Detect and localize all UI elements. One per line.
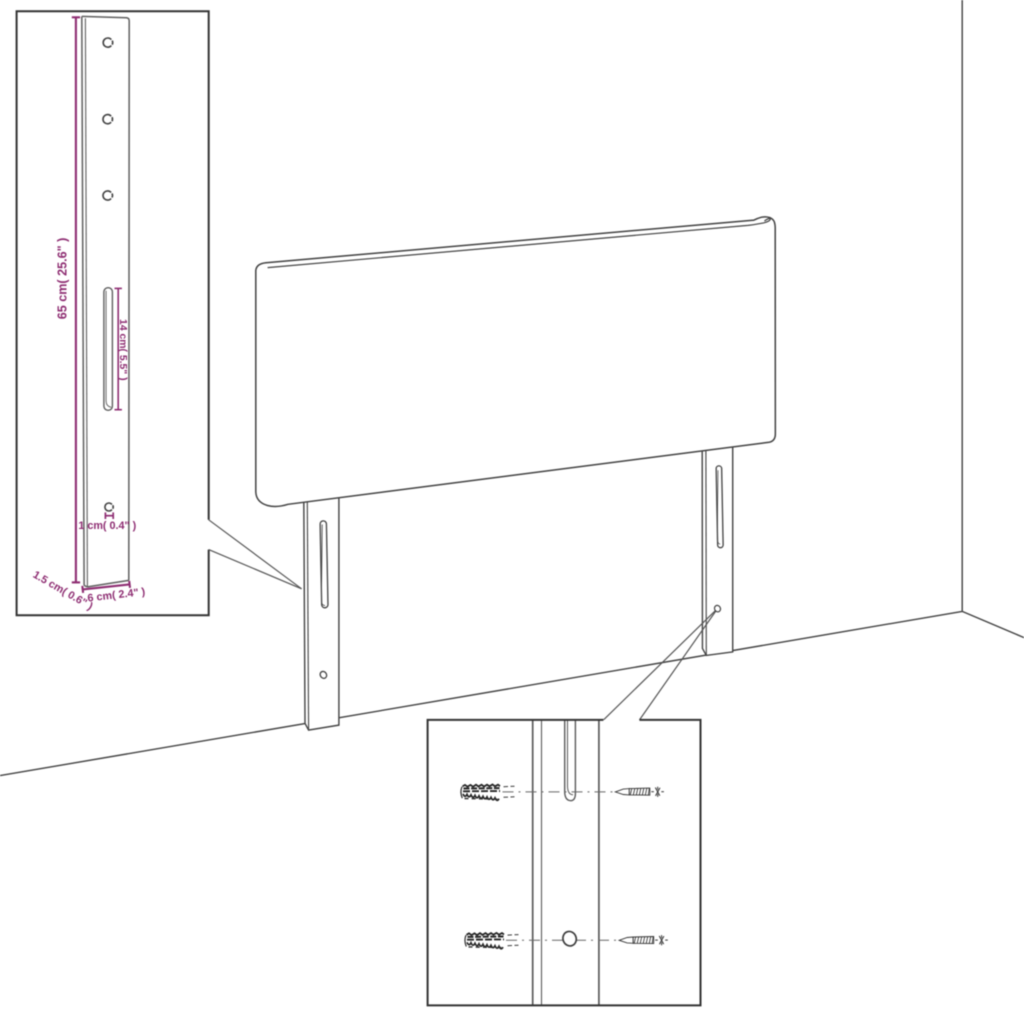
svg-text:1 cm( 0.4" ): 1 cm( 0.4" ) [78, 520, 136, 532]
svg-text:65 cm( 25.6" ): 65 cm( 25.6" ) [56, 238, 70, 320]
svg-text:14 cm( 5.5" ): 14 cm( 5.5" ) [117, 319, 128, 381]
